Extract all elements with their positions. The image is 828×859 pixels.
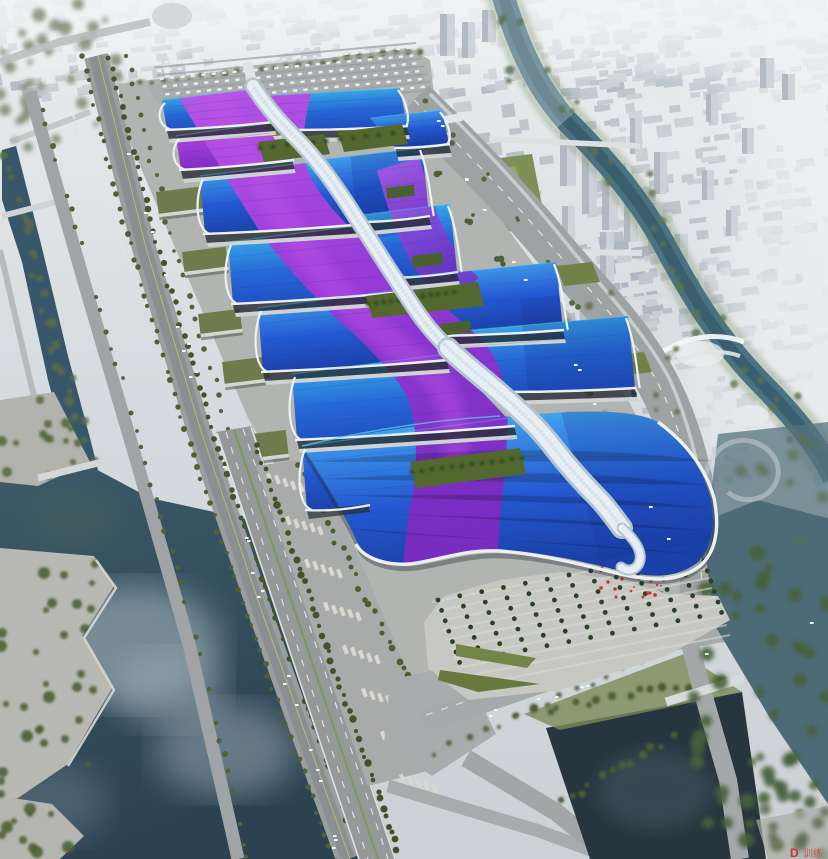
svg-text:训练: 训练 [803, 847, 823, 859]
svg-text:D: D [790, 846, 799, 859]
